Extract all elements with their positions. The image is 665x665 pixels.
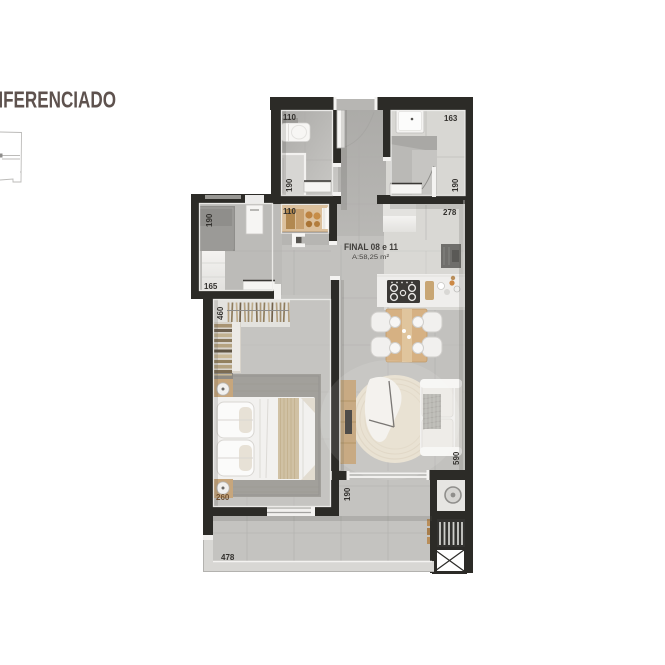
- svg-text:FINAL 08 e 11: FINAL 08 e 11: [344, 242, 398, 252]
- svg-text:190: 190: [451, 178, 460, 192]
- svg-text:190: 190: [285, 178, 294, 192]
- svg-text:110: 110: [283, 113, 296, 122]
- svg-text:590: 590: [452, 451, 461, 465]
- svg-text:260: 260: [216, 493, 230, 502]
- svg-text:DIFERENCIADO: DIFERENCIADO: [0, 87, 116, 113]
- svg-text:165: 165: [204, 282, 218, 291]
- svg-text:278: 278: [443, 208, 457, 217]
- svg-text:478: 478: [221, 553, 235, 562]
- svg-text:460: 460: [216, 306, 225, 320]
- svg-text:110: 110: [283, 207, 296, 216]
- svg-text:190: 190: [343, 487, 352, 501]
- svg-text:190: 190: [205, 213, 214, 227]
- svg-text:163: 163: [444, 114, 458, 123]
- svg-text:A:58,25 m²: A:58,25 m²: [352, 254, 390, 261]
